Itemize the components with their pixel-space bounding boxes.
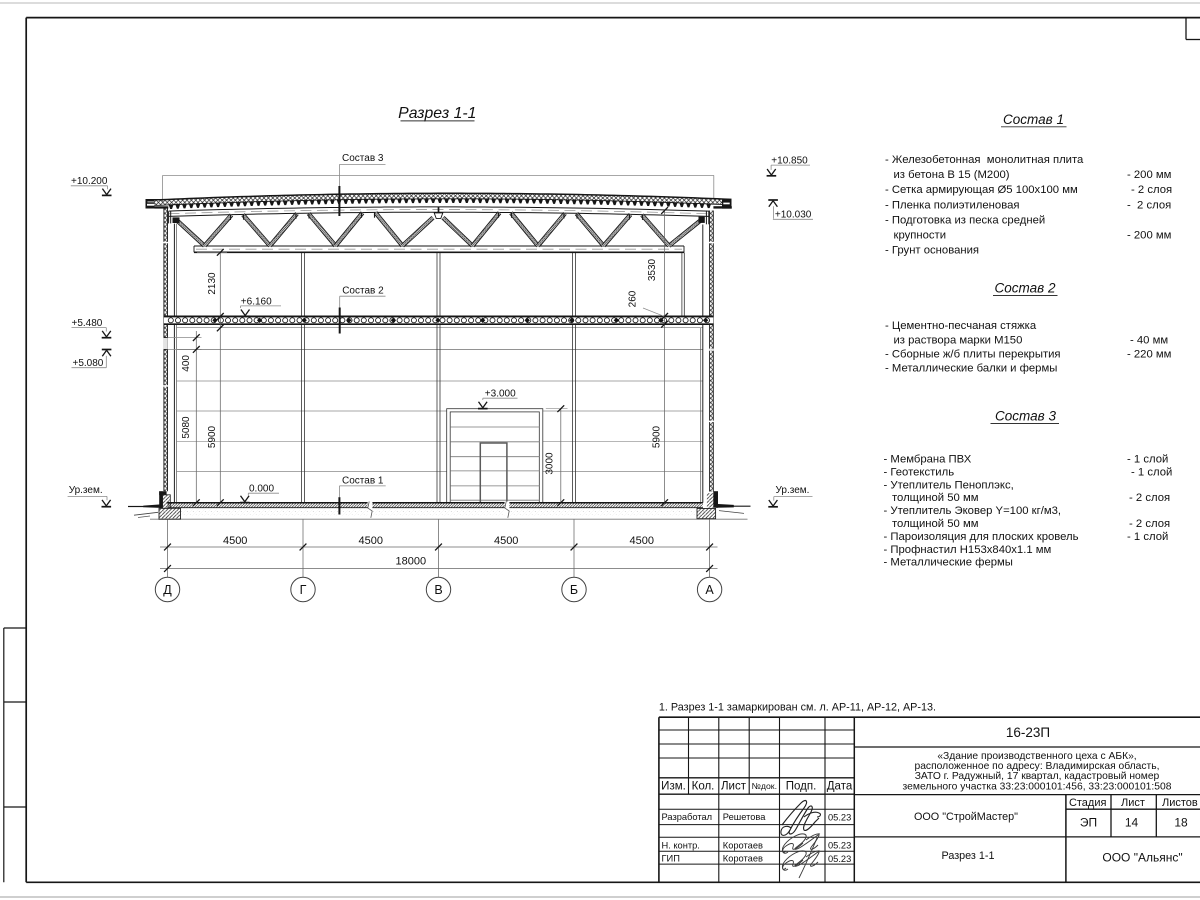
svg-text:- 200 мм: - 200 мм bbox=[1127, 230, 1171, 242]
svg-text:из бетона В 15 (М200): из бетона В 15 (М200) bbox=[894, 169, 1010, 181]
svg-text:Стадия: Стадия bbox=[1069, 797, 1107, 809]
svg-text:Б: Б bbox=[570, 583, 578, 597]
svg-text:18000: 18000 bbox=[396, 556, 427, 568]
svg-text:- 2 слоя: - 2 слоя bbox=[1127, 199, 1171, 211]
svg-text:А: А bbox=[705, 583, 714, 597]
svg-text:толщиной 50 мм: толщиной 50 мм bbox=[892, 518, 979, 530]
svg-text:Ур.зем.: Ур.зем. bbox=[69, 485, 103, 496]
svg-text:Д: Д bbox=[163, 583, 172, 597]
svg-text:Разрез 1-1: Разрез 1-1 bbox=[398, 105, 476, 122]
svg-text:- 40 мм: - 40 мм bbox=[1130, 334, 1168, 346]
svg-text:Листов: Листов bbox=[1162, 797, 1198, 809]
svg-text:- Цементно-песчаная стяжка: - Цементно-песчаная стяжка bbox=[885, 320, 1037, 332]
svg-text:- 220 мм: - 220 мм bbox=[1127, 348, 1171, 360]
svg-text:Состав 1: Состав 1 bbox=[342, 475, 384, 486]
svg-text:Лист: Лист bbox=[721, 781, 747, 793]
svg-text:Решетова: Решетова bbox=[723, 812, 766, 822]
svg-text:Изм.: Изм. bbox=[661, 781, 686, 793]
svg-text:+10.030: +10.030 bbox=[775, 209, 812, 220]
svg-text:Ур.зем.: Ур.зем. bbox=[776, 485, 810, 496]
svg-text:- Геотекстиль: - Геотекстиль bbox=[884, 466, 955, 478]
svg-text:05.23: 05.23 bbox=[828, 813, 851, 823]
svg-text:Лист: Лист bbox=[1121, 797, 1145, 809]
svg-text:Разрез 1-1: Разрез 1-1 bbox=[941, 850, 994, 862]
svg-text:- Пленка полиэтиленовая: - Пленка полиэтиленовая bbox=[885, 199, 1019, 211]
svg-text:расположенное по адресу: Влади: расположенное по адресу: Владимирская об… bbox=[914, 760, 1159, 772]
svg-text:260: 260 bbox=[628, 290, 639, 307]
svg-text:- 200 мм: - 200 мм bbox=[1127, 169, 1171, 181]
svg-text:Состав 2: Состав 2 bbox=[995, 281, 1056, 296]
svg-text:Коротаев: Коротаев bbox=[723, 840, 763, 850]
svg-text:- Металлические фермы: - Металлические фермы bbox=[884, 557, 1013, 569]
svg-text:- Подготовка из песка средней: - Подготовка из песка средней bbox=[885, 215, 1045, 227]
svg-text:- Профнастил Н153х840х1.1 мм: - Профнастил Н153х840х1.1 мм bbox=[884, 544, 1052, 556]
svg-text:3000: 3000 bbox=[545, 452, 556, 475]
svg-text:ГИП: ГИП bbox=[662, 854, 680, 864]
svg-text:4500: 4500 bbox=[223, 535, 247, 547]
svg-text:- Сетка армирующая Ø5 100х100: - Сетка армирующая Ø5 100х100 мм bbox=[885, 184, 1078, 196]
svg-text:- Пароизоляция для плоских кро: - Пароизоляция для плоских кровель bbox=[884, 531, 1079, 543]
svg-text:- 2 слоя: - 2 слоя bbox=[1129, 518, 1170, 530]
svg-text:5900: 5900 bbox=[207, 425, 218, 448]
svg-text:Н. контр.: Н. контр. bbox=[662, 840, 700, 850]
svg-text:Кол.: Кол. bbox=[692, 781, 715, 793]
svg-text:ООО "Альянс": ООО "Альянс" bbox=[1102, 851, 1182, 865]
svg-text:В: В bbox=[434, 583, 442, 597]
svg-text:05.23: 05.23 bbox=[828, 841, 851, 851]
svg-text:- 1 слой: - 1 слой bbox=[1127, 531, 1168, 543]
svg-text:- Мембрана ПВХ: - Мембрана ПВХ bbox=[884, 454, 972, 466]
svg-text:1. Разрез 1-1 замаркирован см.: 1. Разрез 1-1 замаркирован см. л. АР-11,… bbox=[659, 702, 936, 714]
svg-text:Состав 3: Состав 3 bbox=[342, 153, 384, 164]
svg-text:- Утеплитель Пеноплэкс,: - Утеплитель Пеноплэкс, bbox=[884, 479, 1014, 491]
svg-text:- 2 слоя: - 2 слоя bbox=[1131, 184, 1172, 196]
svg-text:400: 400 bbox=[181, 355, 192, 372]
svg-text:2130: 2130 bbox=[207, 272, 218, 295]
svg-text:- 1 слой: - 1 слой bbox=[1131, 466, 1172, 478]
svg-text:+3.000: +3.000 bbox=[485, 388, 516, 399]
svg-text:толщиной 50 мм: толщиной 50 мм bbox=[892, 492, 979, 504]
svg-text:крупности: крупности bbox=[894, 230, 947, 242]
svg-text:5080: 5080 bbox=[181, 416, 192, 439]
svg-text:4500: 4500 bbox=[630, 535, 654, 547]
svg-text:№док.: №док. bbox=[752, 781, 777, 791]
svg-text:- Грунт основания: - Грунт основания bbox=[885, 245, 979, 257]
svg-text:16-23П: 16-23П bbox=[1006, 725, 1050, 740]
svg-text:+5.480: +5.480 bbox=[72, 318, 103, 329]
svg-text:Подп.: Подп. bbox=[786, 781, 817, 793]
svg-text:5900: 5900 bbox=[652, 425, 663, 448]
svg-text:Коротаев: Коротаев bbox=[723, 854, 763, 864]
svg-text:4500: 4500 bbox=[494, 535, 518, 547]
svg-text:ООО "СтройМастер": ООО "СтройМастер" bbox=[914, 811, 1018, 823]
svg-text:- 2 слоя: - 2 слоя bbox=[1129, 492, 1170, 504]
svg-text:0.000: 0.000 bbox=[249, 483, 274, 494]
svg-text:Состав 2: Состав 2 bbox=[342, 285, 384, 296]
svg-text:4500: 4500 bbox=[359, 535, 383, 547]
svg-text:3530: 3530 bbox=[647, 258, 658, 281]
svg-text:14: 14 bbox=[1125, 816, 1139, 830]
svg-text:земельного участка 33:23:00010: земельного участка 33:23:000101:456, 33:… bbox=[903, 781, 1172, 792]
svg-text:Состав 1: Состав 1 bbox=[1003, 112, 1064, 127]
svg-text:- 1 слой: - 1 слой bbox=[1127, 454, 1168, 466]
svg-text:из раствора марки М150: из раствора марки М150 bbox=[894, 334, 1023, 346]
svg-text:18: 18 bbox=[1174, 816, 1188, 830]
svg-text:Дата: Дата bbox=[827, 781, 853, 793]
svg-text:05.23: 05.23 bbox=[828, 854, 851, 864]
svg-text:Состав 3: Состав 3 bbox=[995, 409, 1056, 424]
svg-text:+10.850: +10.850 bbox=[771, 155, 808, 166]
svg-text:Разработал: Разработал bbox=[662, 812, 713, 822]
svg-text:- Утеплитель Эковер Y=100 кг/м: - Утеплитель Эковер Y=100 кг/м3, bbox=[884, 505, 1062, 517]
svg-text:- Сборные ж/б плиты перекрытия: - Сборные ж/б плиты перекрытия bbox=[885, 348, 1061, 360]
svg-text:- Железобетонная монолитная п: - Железобетонная монолитная плита bbox=[885, 154, 1084, 166]
svg-text:- Металлические балки и фермы: - Металлические балки и фермы bbox=[885, 363, 1057, 375]
svg-text:Г: Г bbox=[300, 583, 307, 597]
svg-text:ЭП: ЭП bbox=[1080, 816, 1097, 830]
